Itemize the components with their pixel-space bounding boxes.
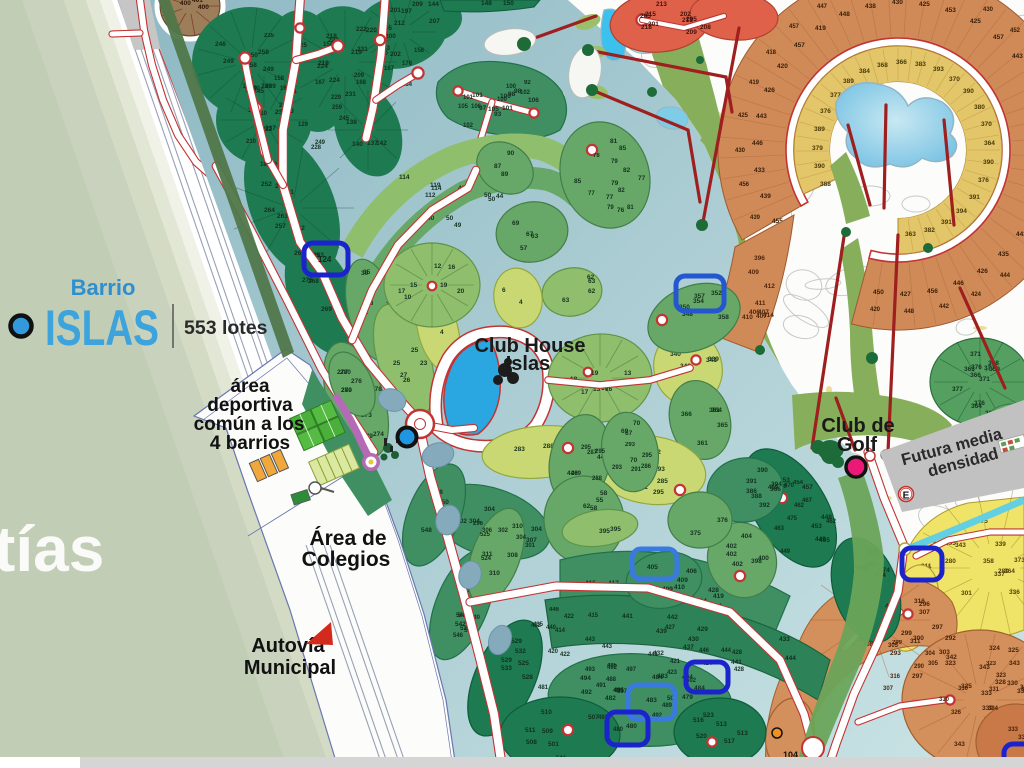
svg-text:124: 124	[318, 255, 332, 264]
svg-text:420: 420	[548, 649, 559, 655]
svg-text:427: 427	[665, 625, 676, 631]
svg-text:462: 462	[794, 503, 805, 509]
svg-text:77: 77	[638, 175, 646, 182]
svg-text:176: 176	[402, 61, 413, 67]
svg-text:222: 222	[356, 26, 367, 33]
svg-text:497: 497	[626, 667, 637, 673]
svg-text:339: 339	[995, 541, 1006, 548]
svg-text:49: 49	[454, 222, 462, 229]
svg-text:Golf: Golf	[837, 434, 877, 456]
svg-text:330: 330	[939, 697, 950, 703]
svg-text:6: 6	[502, 287, 506, 294]
svg-text:área: área	[230, 376, 270, 397]
svg-text:382: 382	[924, 227, 935, 234]
svg-text:411: 411	[755, 300, 766, 307]
svg-text:377: 377	[952, 386, 963, 393]
svg-text:4: 4	[519, 299, 523, 306]
svg-text:423: 423	[667, 670, 678, 676]
svg-text:287: 287	[587, 450, 598, 456]
svg-text:280: 280	[340, 369, 351, 376]
svg-text:78: 78	[593, 153, 600, 159]
svg-text:493: 493	[585, 667, 596, 673]
svg-text:323: 323	[945, 660, 956, 667]
svg-text:368: 368	[877, 62, 888, 69]
svg-text:10: 10	[404, 294, 412, 301]
svg-text:457: 457	[794, 42, 805, 49]
svg-text:370: 370	[949, 76, 960, 83]
svg-text:501: 501	[548, 741, 559, 748]
svg-text:289: 289	[571, 471, 582, 477]
svg-text:81: 81	[627, 205, 634, 211]
svg-text:293: 293	[612, 465, 623, 471]
svg-text:376: 376	[820, 108, 831, 115]
svg-text:249: 249	[315, 140, 326, 146]
svg-text:210: 210	[246, 139, 257, 145]
svg-text:463: 463	[774, 526, 785, 532]
svg-text:264: 264	[264, 207, 275, 214]
svg-text:258: 258	[258, 49, 269, 56]
svg-text:391: 391	[969, 194, 980, 201]
svg-text:533: 533	[501, 665, 512, 672]
svg-text:295: 295	[642, 453, 653, 459]
svg-text:426: 426	[977, 268, 988, 275]
svg-text:283: 283	[514, 446, 525, 453]
svg-text:70: 70	[630, 457, 638, 464]
svg-text:304: 304	[484, 506, 495, 513]
svg-text:401: 401	[192, 0, 203, 4]
svg-text:373: 373	[1014, 557, 1024, 564]
svg-text:443: 443	[756, 113, 767, 120]
svg-text:324: 324	[989, 645, 1000, 652]
svg-text:93: 93	[494, 111, 502, 118]
svg-text:433: 433	[779, 636, 790, 643]
svg-text:366: 366	[681, 411, 692, 418]
svg-text:529: 529	[511, 638, 522, 645]
svg-text:525: 525	[518, 660, 529, 667]
svg-text:263: 263	[277, 213, 288, 220]
svg-text:388: 388	[820, 181, 831, 188]
svg-text:419: 419	[713, 593, 724, 600]
svg-text:79: 79	[607, 205, 614, 211]
svg-text:325: 325	[1008, 647, 1019, 654]
svg-text:441: 441	[622, 613, 633, 620]
svg-text:295: 295	[653, 489, 664, 496]
svg-text:257: 257	[275, 223, 286, 230]
svg-text:425: 425	[970, 18, 981, 25]
svg-text:395: 395	[610, 526, 621, 533]
svg-text:425: 425	[738, 113, 749, 119]
svg-text:4 barrios: 4 barrios	[210, 433, 290, 454]
svg-text:305: 305	[928, 661, 939, 667]
svg-text:19: 19	[440, 282, 448, 289]
svg-text:513: 513	[716, 721, 727, 728]
svg-text:410: 410	[674, 584, 685, 591]
svg-text:483: 483	[646, 697, 657, 704]
svg-text:520: 520	[696, 733, 707, 740]
svg-text:376: 376	[978, 177, 989, 184]
svg-text:249: 249	[223, 58, 234, 65]
svg-text:293: 293	[625, 442, 636, 448]
svg-text:167: 167	[384, 66, 395, 72]
svg-text:443: 443	[1016, 231, 1024, 238]
svg-text:50: 50	[446, 215, 454, 222]
svg-text:393: 393	[933, 66, 944, 73]
svg-text:81: 81	[610, 138, 618, 145]
svg-text:402: 402	[726, 543, 737, 550]
svg-text:202: 202	[390, 51, 401, 58]
svg-text:167: 167	[315, 80, 326, 86]
svg-text:441: 441	[731, 659, 742, 666]
svg-text:25: 25	[393, 360, 401, 367]
svg-text:444: 444	[785, 655, 796, 662]
svg-text:307: 307	[919, 609, 930, 616]
svg-text:297: 297	[912, 673, 923, 680]
svg-text:Municipal: Municipal	[244, 657, 336, 679]
svg-text:444: 444	[721, 648, 732, 654]
svg-text:301: 301	[525, 543, 536, 549]
svg-text:201: 201	[648, 21, 659, 28]
svg-text:114: 114	[399, 174, 410, 181]
svg-text:90: 90	[507, 150, 515, 157]
svg-text:402: 402	[732, 561, 743, 568]
svg-text:58: 58	[600, 490, 608, 497]
svg-text:112: 112	[425, 192, 436, 199]
svg-text:391: 391	[746, 478, 757, 485]
svg-text:85: 85	[619, 145, 627, 152]
svg-text:269: 269	[321, 306, 332, 313]
svg-text:231: 231	[345, 91, 356, 98]
svg-text:100: 100	[506, 84, 517, 90]
svg-text:229: 229	[331, 95, 342, 101]
svg-text:364: 364	[971, 403, 982, 410]
svg-text:428: 428	[708, 587, 719, 594]
svg-text:491: 491	[596, 683, 607, 689]
svg-text:101: 101	[502, 105, 513, 112]
svg-text:389: 389	[814, 126, 825, 133]
svg-text:140: 140	[352, 141, 363, 148]
svg-text:420: 420	[777, 63, 788, 70]
svg-text:201: 201	[390, 7, 401, 14]
svg-text:391: 391	[941, 219, 952, 226]
svg-text:339: 339	[708, 356, 719, 363]
svg-text:deportiva: deportiva	[207, 395, 293, 416]
svg-text:82: 82	[623, 167, 631, 174]
svg-text:304: 304	[531, 526, 542, 533]
svg-text:326: 326	[951, 710, 962, 716]
svg-text:310: 310	[512, 523, 523, 530]
svg-text:304: 304	[925, 651, 936, 657]
svg-text:420: 420	[870, 307, 881, 313]
svg-text:375: 375	[690, 530, 701, 537]
svg-text:421: 421	[670, 659, 681, 665]
svg-text:419: 419	[749, 80, 760, 86]
svg-text:419: 419	[815, 25, 826, 32]
svg-text:459: 459	[768, 485, 779, 491]
svg-text:202: 202	[680, 11, 691, 18]
svg-text:39: 39	[361, 270, 369, 277]
svg-text:274: 274	[373, 431, 384, 438]
svg-text:412: 412	[764, 283, 775, 290]
svg-text:17: 17	[398, 288, 406, 295]
svg-text:510: 510	[541, 709, 552, 716]
svg-text:376: 376	[717, 517, 728, 524]
svg-text:446: 446	[752, 140, 763, 147]
svg-text:532: 532	[515, 648, 526, 655]
svg-text:446: 446	[699, 648, 710, 654]
svg-text:77: 77	[606, 194, 614, 201]
svg-text:62: 62	[588, 288, 596, 295]
svg-text:553 lotes: 553 lotes	[184, 317, 268, 339]
svg-text:212: 212	[394, 20, 405, 27]
svg-text:239: 239	[265, 83, 276, 90]
svg-text:442: 442	[939, 304, 950, 310]
svg-text:213: 213	[682, 17, 693, 24]
svg-text:219: 219	[351, 49, 362, 56]
svg-text:268: 268	[308, 278, 319, 285]
svg-text:528: 528	[522, 674, 533, 681]
svg-text:437: 437	[683, 644, 694, 651]
svg-text:343: 343	[954, 741, 965, 748]
svg-text:218: 218	[326, 33, 337, 40]
svg-text:20: 20	[457, 288, 465, 295]
svg-text:63: 63	[531, 233, 539, 240]
svg-text:79: 79	[611, 159, 618, 165]
svg-text:489: 489	[662, 703, 673, 709]
svg-text:343: 343	[1009, 660, 1020, 667]
svg-text:482: 482	[605, 695, 616, 702]
svg-text:ISLAS: ISLAS	[45, 300, 159, 356]
svg-text:106: 106	[528, 97, 539, 104]
svg-text:44: 44	[496, 193, 504, 200]
svg-text:301: 301	[961, 590, 972, 597]
svg-text:426: 426	[764, 87, 775, 94]
svg-text:371: 371	[979, 376, 990, 383]
svg-text:119: 119	[430, 182, 441, 189]
svg-text:409: 409	[677, 577, 688, 584]
svg-text:4: 4	[440, 329, 444, 336]
svg-text:380: 380	[974, 104, 985, 111]
svg-text:286: 286	[641, 464, 652, 470]
svg-text:383: 383	[915, 61, 926, 68]
svg-text:Área de: Área de	[309, 527, 386, 550]
svg-text:400: 400	[198, 4, 209, 11]
svg-text:481: 481	[538, 685, 549, 691]
svg-text:517: 517	[724, 738, 735, 745]
svg-text:418: 418	[766, 50, 777, 56]
svg-text:100: 100	[497, 97, 508, 103]
svg-text:12: 12	[434, 263, 442, 270]
svg-text:456: 456	[739, 182, 750, 188]
svg-text:150: 150	[503, 0, 514, 7]
svg-text:457: 457	[789, 24, 800, 30]
svg-text:335: 335	[1018, 734, 1024, 741]
svg-text:446: 446	[953, 280, 964, 287]
svg-text:446: 446	[549, 607, 560, 613]
svg-text:396: 396	[754, 255, 765, 262]
svg-text:404: 404	[741, 533, 752, 540]
svg-text:63: 63	[562, 297, 570, 304]
svg-text:358: 358	[718, 314, 729, 321]
svg-text:435: 435	[998, 251, 1009, 258]
svg-text:388: 388	[751, 493, 762, 500]
svg-text:280: 280	[945, 558, 956, 565]
svg-text:443: 443	[602, 644, 613, 650]
svg-text:19: 19	[591, 370, 599, 377]
svg-text:441: 441	[648, 652, 659, 658]
svg-text:158: 158	[414, 48, 425, 54]
svg-text:462: 462	[826, 519, 837, 525]
svg-text:27: 27	[400, 372, 408, 379]
svg-text:82: 82	[618, 188, 625, 194]
svg-text:144: 144	[428, 1, 439, 8]
svg-text:422: 422	[564, 614, 575, 620]
svg-text:87: 87	[494, 163, 502, 170]
svg-text:205: 205	[640, 13, 651, 20]
svg-text:23: 23	[420, 360, 428, 367]
svg-text:Barrio: Barrio	[71, 275, 136, 300]
svg-text:293: 293	[890, 650, 901, 657]
svg-text:394: 394	[956, 208, 967, 215]
svg-text:69: 69	[512, 220, 520, 227]
svg-text:365: 365	[717, 422, 728, 429]
svg-text:285: 285	[657, 478, 668, 485]
svg-text:311: 311	[910, 638, 921, 645]
svg-text:509: 509	[542, 728, 553, 735]
svg-text:89: 89	[501, 171, 509, 178]
svg-text:371: 371	[970, 351, 981, 358]
svg-text:390: 390	[983, 159, 994, 166]
svg-text:529: 529	[501, 657, 512, 664]
svg-text:330: 330	[958, 686, 969, 692]
svg-text:102: 102	[520, 90, 531, 96]
svg-text:207: 207	[429, 18, 440, 25]
svg-text:102: 102	[463, 123, 474, 129]
svg-text:158: 158	[274, 76, 285, 82]
svg-text:425: 425	[919, 1, 930, 8]
svg-text:379: 379	[812, 145, 823, 152]
svg-text:361: 361	[709, 407, 720, 414]
svg-text:488: 488	[606, 677, 617, 683]
svg-text:69: 69	[621, 428, 629, 435]
svg-text:105: 105	[458, 104, 469, 110]
svg-text:76: 76	[617, 207, 625, 214]
svg-text:197: 197	[401, 8, 412, 15]
svg-text:406: 406	[686, 568, 697, 575]
svg-text:414: 414	[555, 628, 566, 634]
svg-text:208: 208	[700, 24, 711, 31]
svg-text:336: 336	[1009, 589, 1020, 596]
svg-text:148: 148	[481, 0, 492, 7]
svg-text:307: 307	[883, 686, 894, 692]
svg-text:296: 296	[473, 521, 484, 527]
svg-text:209: 209	[412, 1, 423, 8]
svg-text:402: 402	[726, 551, 737, 558]
svg-text:442: 442	[667, 614, 678, 621]
svg-text:457: 457	[802, 484, 813, 491]
svg-text:70: 70	[633, 420, 641, 427]
svg-text:106: 106	[471, 104, 482, 110]
svg-text:430: 430	[892, 0, 903, 6]
svg-text:209: 209	[686, 29, 697, 36]
svg-text:308: 308	[507, 552, 518, 559]
svg-text:452: 452	[1010, 28, 1021, 34]
svg-text:410: 410	[742, 314, 753, 321]
svg-text:415: 415	[588, 613, 599, 619]
svg-text:457: 457	[993, 34, 1004, 41]
svg-text:299: 299	[901, 630, 912, 637]
svg-text:492: 492	[581, 689, 592, 696]
svg-text:361: 361	[697, 440, 708, 447]
svg-text:409: 409	[748, 269, 759, 276]
svg-text:304: 304	[516, 535, 527, 541]
svg-text:62: 62	[587, 274, 595, 281]
svg-text:525: 525	[480, 532, 491, 538]
svg-text:427: 427	[900, 291, 911, 298]
svg-text:430: 430	[983, 7, 994, 13]
svg-text:449: 449	[780, 549, 791, 555]
svg-text:común a los: común a los	[194, 414, 305, 435]
svg-text:390: 390	[963, 88, 974, 95]
svg-text:337: 337	[994, 571, 1005, 578]
svg-text:168: 168	[356, 80, 367, 86]
svg-text:92: 92	[524, 80, 531, 86]
svg-text:435: 435	[533, 622, 544, 628]
svg-text:390: 390	[757, 467, 768, 474]
svg-text:475: 475	[787, 516, 798, 522]
svg-text:424: 424	[971, 292, 982, 298]
svg-text:364: 364	[984, 140, 995, 147]
svg-text:101: 101	[463, 95, 474, 101]
svg-text:79: 79	[611, 180, 619, 187]
svg-text:259: 259	[332, 105, 343, 111]
svg-text:291: 291	[631, 467, 642, 473]
svg-text:316: 316	[890, 674, 901, 680]
svg-text:456: 456	[927, 288, 938, 295]
svg-text:310: 310	[489, 570, 500, 577]
svg-text:439: 439	[760, 193, 771, 200]
svg-text:213: 213	[656, 1, 667, 8]
svg-text:16: 16	[448, 264, 456, 271]
svg-text:246: 246	[215, 41, 226, 48]
svg-text:333: 333	[1008, 727, 1019, 733]
svg-text:484: 484	[652, 674, 663, 681]
svg-text:439: 439	[750, 215, 761, 221]
svg-text:450: 450	[873, 289, 884, 296]
svg-text:448: 448	[839, 11, 850, 18]
svg-text:354: 354	[693, 298, 704, 305]
svg-text:523: 523	[703, 712, 714, 719]
svg-text:443: 443	[1012, 53, 1023, 60]
svg-text:546: 546	[453, 633, 464, 639]
svg-text:494: 494	[580, 675, 591, 682]
svg-text:366: 366	[896, 59, 907, 66]
svg-text:524: 524	[481, 556, 492, 562]
svg-text:296: 296	[919, 601, 930, 608]
svg-text:438: 438	[865, 3, 876, 10]
svg-text:235: 235	[264, 33, 275, 39]
svg-text:400: 400	[180, 0, 191, 7]
svg-text:129: 129	[298, 122, 309, 128]
svg-text:480: 480	[613, 727, 624, 733]
svg-text:323: 323	[996, 673, 1007, 679]
svg-text:343: 343	[955, 542, 966, 549]
svg-text:57: 57	[520, 245, 528, 252]
svg-text:Colegios: Colegios	[302, 548, 391, 571]
svg-text:389: 389	[843, 78, 854, 85]
svg-text:448: 448	[904, 309, 915, 315]
svg-text:495: 495	[607, 663, 618, 669]
svg-text:428: 428	[734, 667, 745, 673]
